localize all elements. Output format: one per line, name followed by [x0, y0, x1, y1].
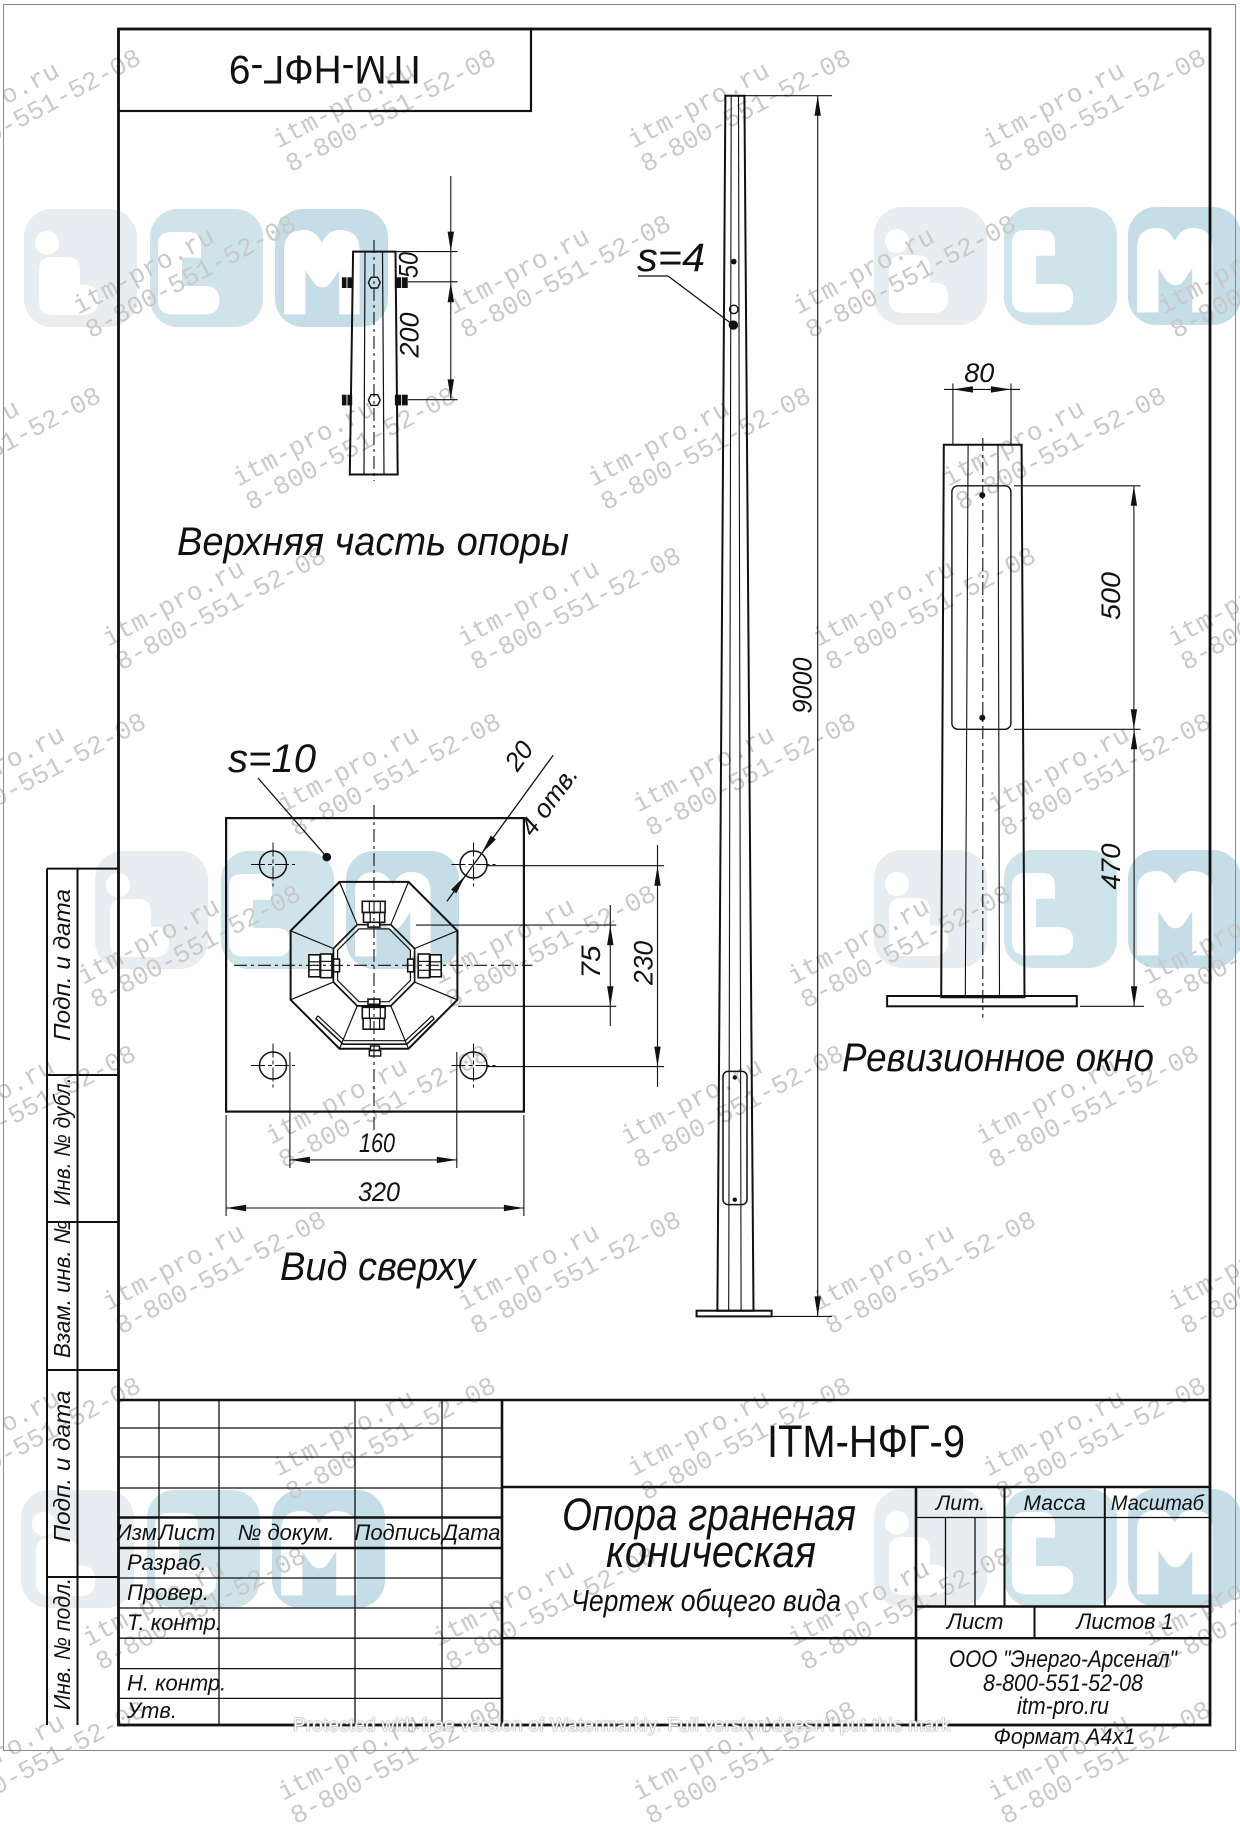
- svg-text:Дата: Дата: [439, 1520, 500, 1545]
- svg-text:Утв.: Утв.: [126, 1698, 177, 1723]
- svg-text:Лист: Лист: [157, 1520, 216, 1545]
- svg-text:470: 470: [1096, 844, 1126, 890]
- svg-text:ITM-НФГ-9: ITM-НФГ-9: [767, 1416, 965, 1467]
- svg-text:Провер.: Провер.: [127, 1580, 209, 1605]
- svg-text:75: 75: [576, 944, 606, 978]
- svg-text:коническая: коническая: [606, 1526, 816, 1577]
- svg-text:Верхняя часть опоры: Верхняя часть опоры: [177, 520, 569, 564]
- svg-text:s=4: s=4: [637, 236, 705, 280]
- svg-text:Взам. инв. №: Взам. инв. №: [49, 1220, 75, 1358]
- svg-text:№ докум.: № докум.: [238, 1520, 335, 1545]
- svg-text:Лист: Лист: [945, 1609, 1004, 1634]
- svg-text:s=10: s=10: [228, 737, 316, 781]
- svg-text:20: 20: [498, 735, 540, 777]
- svg-text:Лит.: Лит.: [934, 1492, 985, 1515]
- svg-text:Инв. № подл.: Инв. № подл.: [49, 1578, 75, 1710]
- svg-text:itm-pro.ru: itm-pro.ru: [1017, 1693, 1109, 1720]
- svg-text:Инв. № дубл.: Инв. № дубл.: [49, 1078, 75, 1206]
- svg-text:Масса: Масса: [1024, 1492, 1086, 1515]
- svg-text:Формат А4х1: Формат А4х1: [994, 1724, 1136, 1749]
- svg-text:9000: 9000: [788, 658, 818, 714]
- svg-text:ООО "Энерго-Арсенал": ООО "Энерго-Арсенал": [949, 1646, 1178, 1673]
- svg-text:200: 200: [395, 313, 425, 359]
- svg-text:500: 500: [1096, 572, 1126, 620]
- svg-text:230: 230: [629, 941, 659, 986]
- svg-text:Разраб.: Разраб.: [127, 1550, 207, 1575]
- svg-text:Подп. и дата: Подп. и дата: [49, 1391, 75, 1543]
- svg-text:Листов 1: Листов 1: [1075, 1609, 1174, 1634]
- svg-text:Масштаб: Масштаб: [1111, 1492, 1205, 1515]
- svg-text:Вид сверху: Вид сверху: [280, 1245, 478, 1289]
- svg-text:Подп. и дата: Подп. и дата: [49, 889, 75, 1041]
- svg-text:Чертеж общего вида: Чертеж общего вида: [571, 1583, 841, 1618]
- svg-text:ITM-НФГ-9: ITM-НФГ-9: [229, 47, 421, 91]
- svg-text:320: 320: [358, 1177, 400, 1207]
- svg-text:Т. контр.: Т. контр.: [127, 1610, 222, 1635]
- svg-text:Ревизионное окно: Ревизионное окно: [842, 1036, 1154, 1080]
- svg-text:Н. контр.: Н. контр.: [127, 1671, 226, 1696]
- svg-text:Подпись: Подпись: [354, 1520, 441, 1545]
- svg-text:80: 80: [964, 358, 994, 388]
- svg-text:Изм.: Изм.: [116, 1520, 163, 1545]
- svg-text:50: 50: [394, 252, 424, 278]
- svg-text:160: 160: [359, 1128, 395, 1158]
